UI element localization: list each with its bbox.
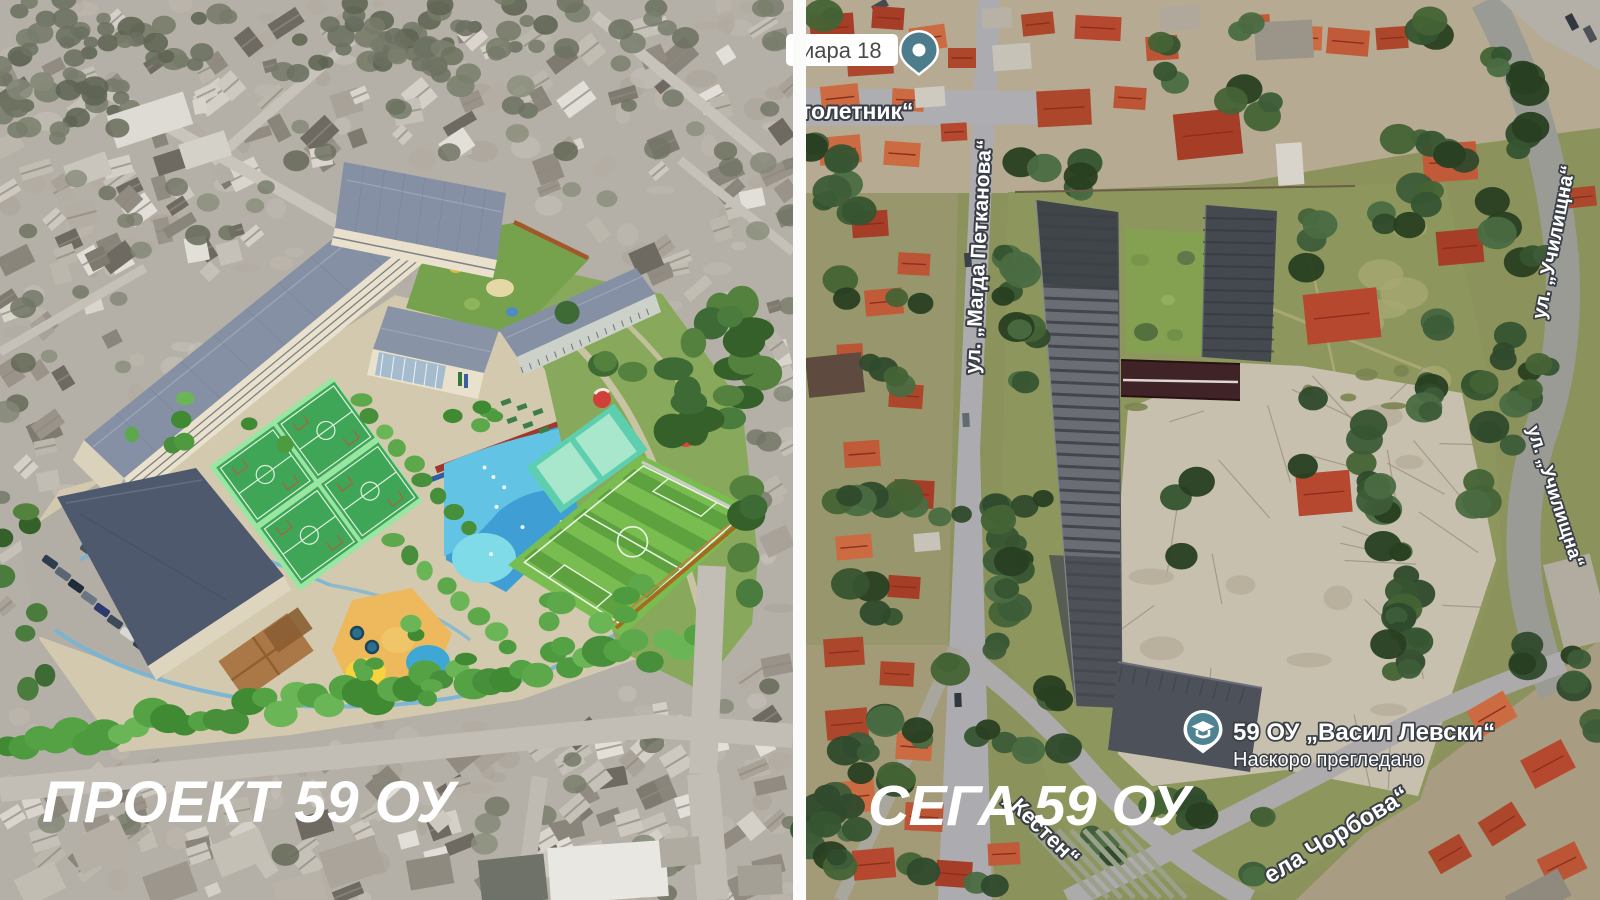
svg-text:иара 18: иара 18 <box>802 38 882 63</box>
svg-text:СЕГА 59 ОУ: СЕГА 59 ОУ <box>868 774 1195 838</box>
svg-text:толетник“: толетник“ <box>800 98 914 124</box>
svg-text:ПРОЕКТ 59 ОУ: ПРОЕКТ 59 ОУ <box>42 770 459 835</box>
svg-text:Наскоро прегледано: Наскоро прегледано <box>1233 749 1424 771</box>
svg-text:59 ОУ „Васил Левски“: 59 ОУ „Васил Левски“ <box>1233 719 1495 746</box>
